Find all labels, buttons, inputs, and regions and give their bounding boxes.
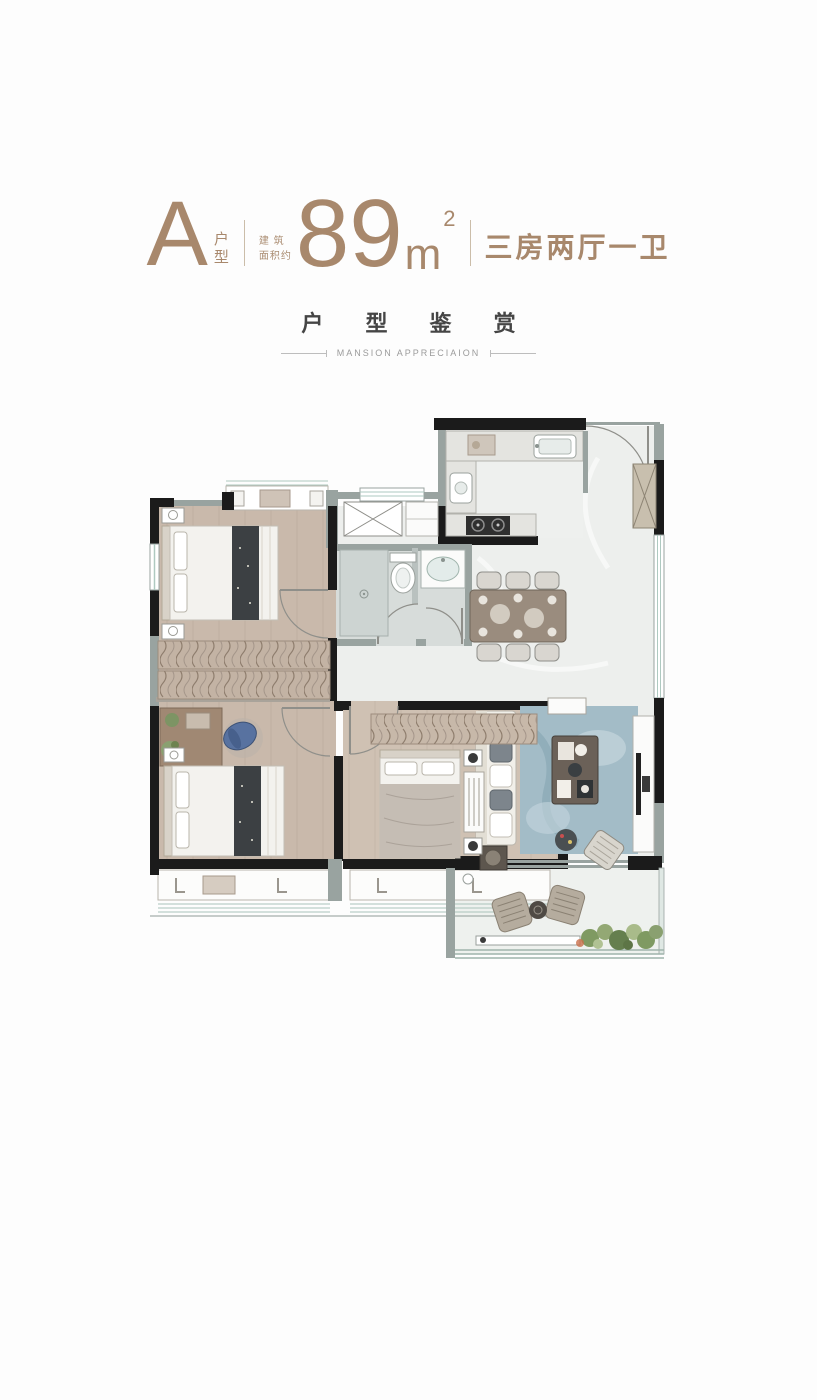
- decor-line-right: [490, 353, 536, 354]
- unit-label-bottom: 型: [214, 249, 230, 268]
- area-prefix-line2: 面积约: [259, 249, 292, 264]
- side-table-icon: [480, 846, 507, 870]
- toilet-icon: [390, 553, 416, 593]
- nightstand-icon: [164, 748, 184, 762]
- floor-plan: [128, 398, 688, 1018]
- pouf-icon: [555, 829, 577, 851]
- header-divider-2: [470, 220, 471, 266]
- layout-text: 三房两厅一卫: [485, 234, 671, 262]
- area-value: 89: [296, 197, 403, 272]
- unit-label-top: 户: [214, 231, 230, 250]
- planter-strip: [476, 936, 580, 945]
- console-table-icon: [548, 698, 586, 714]
- nightstand-icon: [162, 508, 184, 523]
- section-subtitle-row: MANSION APPRECIAION: [0, 346, 817, 360]
- area-prefix: 建 筑 面积约: [259, 234, 292, 264]
- bench-icon: [464, 772, 484, 832]
- bed-icon: [164, 766, 284, 856]
- area-exponent: 2: [443, 208, 455, 230]
- unit-letter: A: [146, 197, 207, 272]
- section-title: 户 型 鉴 赏: [0, 306, 817, 338]
- dining-area: [470, 572, 566, 661]
- bed-icon: [380, 750, 460, 858]
- coffee-table-icon: [552, 736, 598, 804]
- nightstand-icon: [464, 838, 482, 854]
- nightstand-icon: [464, 750, 482, 766]
- unit-type-label: 户 型: [214, 231, 230, 269]
- hall-cabinet: [344, 502, 438, 536]
- bed-icon: [162, 526, 278, 620]
- header-divider-1: [244, 220, 245, 266]
- area-unit: m: [405, 237, 442, 272]
- tv-icon: [636, 753, 641, 815]
- tv-console: [633, 716, 654, 852]
- section-subtitle: MANSION APPRECIAION: [337, 348, 481, 358]
- entry: [633, 464, 656, 528]
- plant-icon: [165, 713, 179, 727]
- nightstand-icon: [162, 624, 184, 639]
- side-table-icon: [529, 901, 547, 919]
- vanity-sink-icon: [421, 550, 465, 588]
- unit-header: A 户 型 建 筑 面积约 89 m 2 三房两厅一卫: [0, 182, 817, 272]
- area-prefix-line1: 建 筑: [259, 234, 292, 249]
- decor-line-left: [281, 353, 327, 354]
